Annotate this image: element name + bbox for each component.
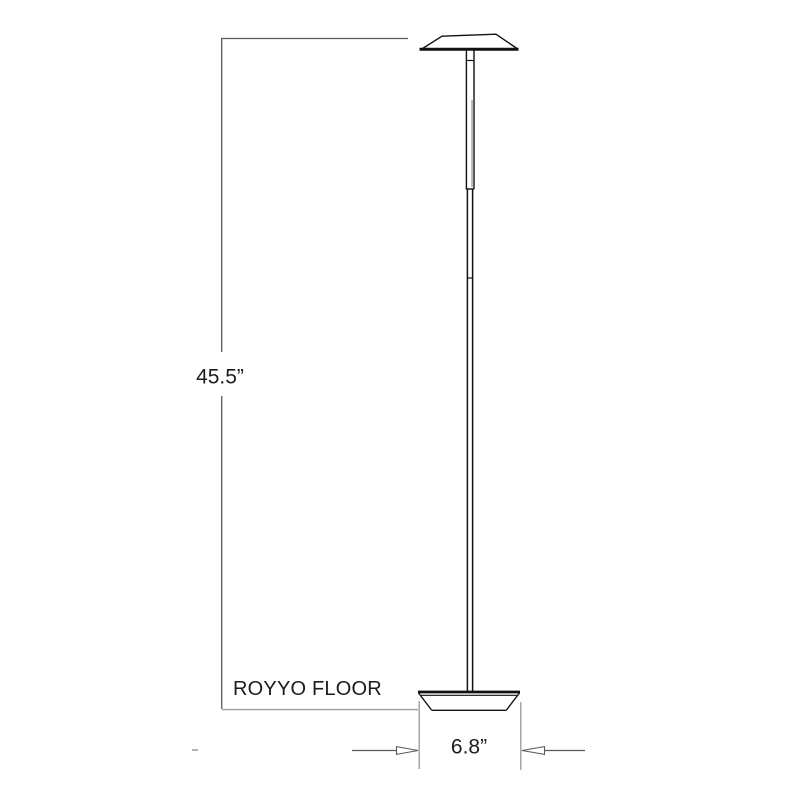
- lamp-drawing: [418, 34, 520, 710]
- width-dim-left-arrowhead: [397, 747, 419, 755]
- dimension-lines: [221, 38, 585, 754]
- product-name-label: ROYYO FLOOR: [233, 679, 382, 699]
- shade-outline: [421, 34, 517, 49]
- base-width-dimension-label: 6.8”: [451, 737, 487, 758]
- width-dim-right-arrowhead: [522, 747, 545, 755]
- lamp-shade: [420, 34, 519, 49]
- lamp-dimension-diagram: 45.5” ROYYO FLOOR 6.8”: [0, 0, 800, 800]
- height-dimension-label: 45.5”: [196, 367, 244, 388]
- diagram-canvas: [0, 0, 800, 800]
- lamp-base: [418, 692, 520, 710]
